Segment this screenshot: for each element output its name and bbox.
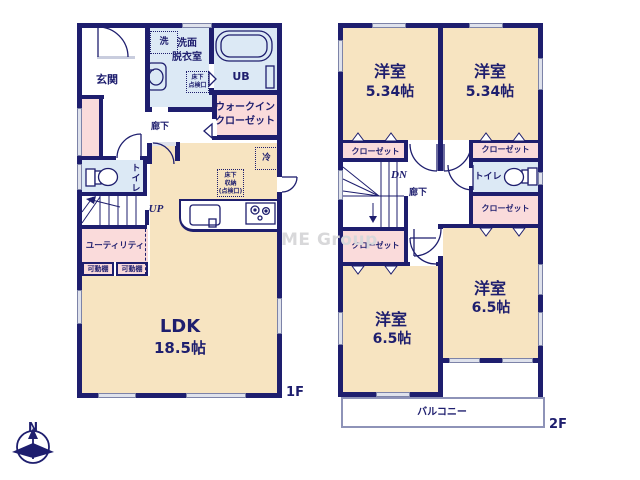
hatch-label-2: 点検口 (186, 82, 209, 90)
window (538, 58, 543, 90)
window (186, 393, 246, 398)
f2-wall-stairs-top (338, 158, 408, 162)
f1-wall-right (277, 23, 282, 398)
f1-wall-stairs-bottom (77, 225, 147, 229)
room-2f-bl (343, 266, 438, 392)
wic-label-2: クローゼット (213, 115, 277, 128)
window (538, 312, 543, 346)
entrance-door (98, 27, 128, 57)
floor-storage-label-1: 床下 (217, 172, 244, 180)
floor-storage-label-2: 収納 (217, 180, 244, 188)
window (277, 298, 282, 334)
washroom-label-1: 洗面 (162, 37, 212, 50)
room-tl-label: 洋室 (360, 63, 420, 81)
toilet-label-1f: トイレ (127, 161, 141, 195)
wic-label-1: ウォークイン (213, 101, 277, 114)
hatch-label-1: 床下 (186, 74, 209, 82)
room-tl-size: 5.34帖 (355, 84, 425, 100)
f2-wall-toilet-left-a (469, 158, 473, 168)
ldk-size-label: 18.5帖 (144, 339, 216, 357)
utility-label: ユーティリティ (85, 240, 145, 252)
back-door (282, 177, 297, 192)
genkan-label: 玄関 (86, 72, 128, 87)
room-bl-door (410, 238, 436, 264)
window (502, 358, 533, 363)
hall-label-1f: 廊下 (147, 121, 173, 133)
compass-icon (12, 428, 54, 463)
f1-wall-hall-ldk-a (147, 143, 152, 164)
window (77, 108, 82, 156)
balcony-label: バルコニー (400, 406, 484, 420)
stairs-1f (82, 196, 136, 225)
room-tr-door (444, 144, 471, 171)
room-bl-size: 6.5帖 (359, 331, 425, 347)
up-label: UP (142, 202, 170, 217)
room-br-door (414, 229, 441, 256)
f2-wall-toilet-top (469, 158, 543, 162)
shelf-label-a: 可動棚 (82, 263, 114, 275)
wic-door-marker (204, 124, 212, 138)
floor-storage-label-3: (点検口) (217, 188, 244, 196)
window (372, 23, 406, 28)
f1-wall-wic-bottom (212, 135, 277, 140)
room-unit-bath (212, 28, 277, 95)
f2-wall-closet-tl-top (343, 140, 408, 143)
window (77, 290, 82, 324)
f1-floor-label: 1F (283, 385, 307, 400)
dn-label: DN (386, 168, 412, 182)
ldk-label: LDK (148, 317, 212, 337)
f2-wall-br-top (443, 224, 543, 228)
closet-tr-label: クローゼット (473, 144, 538, 156)
watermark: ME Group (281, 230, 378, 250)
room-br-size: 6.5帖 (458, 300, 524, 316)
fridge-label: 冷 (255, 150, 278, 167)
window (338, 40, 343, 72)
room-tr-label: 洋室 (460, 63, 520, 81)
shelf-label-b: 可動棚 (116, 263, 148, 275)
window (376, 392, 410, 397)
back-door-gap (277, 177, 282, 192)
toilet-label-2f: トイレ (472, 171, 504, 183)
storage-strip (82, 95, 100, 160)
room-tl-door (410, 144, 437, 171)
stairs-2f-arrow (369, 216, 377, 223)
floorplan-canvas: 玄関 洗 洗面 脱衣室 床下 点検口 UB ウォークイン クローゼット 廊下 ト… (0, 0, 640, 480)
room-tr-size: 5.34帖 (455, 84, 525, 100)
f1-wall-strip-right (99, 95, 103, 160)
f2-wall-center-top (438, 23, 443, 171)
kitchen-counter (179, 199, 277, 232)
room-bl-label: 洋室 (361, 310, 421, 329)
f1-wall-top (77, 23, 282, 28)
window (77, 164, 82, 190)
room-br-label: 洋室 (460, 279, 520, 298)
closet-mr-label: クローゼット (473, 203, 538, 215)
window (538, 264, 543, 295)
stairs-1f-arrow (86, 196, 96, 204)
window (538, 172, 543, 185)
window (182, 23, 212, 28)
washroom-label-2: 脱衣室 (158, 51, 216, 64)
hall-label-2f: 廊下 (404, 187, 432, 199)
f2-wall-closet-tr-top (473, 140, 538, 143)
f2-wall-stairs-right-upper (404, 196, 408, 231)
window (469, 23, 503, 28)
window (98, 393, 136, 398)
f1-wall-left (77, 23, 82, 398)
f2-wall-toilet-bottom (469, 192, 543, 196)
window (338, 170, 343, 200)
f1-wall-ub-bottom (209, 90, 277, 95)
f2-wall-closet-bl-bottom (338, 262, 408, 266)
toilet-door-1f (117, 134, 141, 158)
window (338, 312, 343, 345)
window (449, 358, 480, 363)
closet-tl-label: クローゼット (343, 146, 408, 158)
f2-floor-label: 2F (546, 417, 570, 432)
compass-north-label: N (28, 420, 38, 434)
ub-label: UB (225, 70, 257, 83)
